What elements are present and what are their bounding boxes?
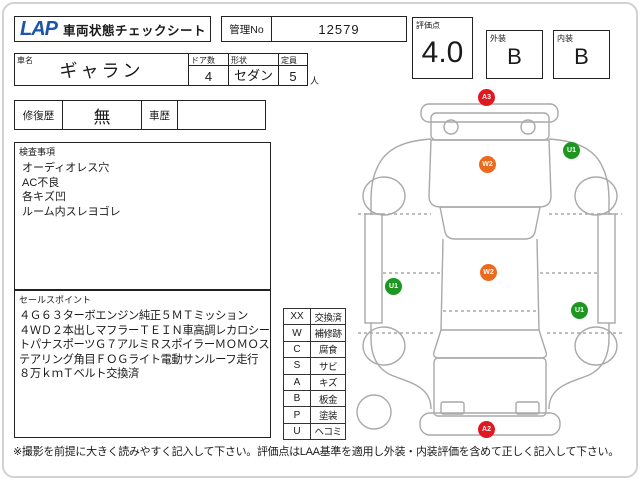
- legend-row: XX交換済: [284, 309, 346, 325]
- legend-label: 交換済: [311, 309, 346, 325]
- inspection-item: AC不良: [22, 176, 266, 191]
- header-title-box: LAP 車両状態チェックシート: [14, 16, 211, 42]
- legend-code: P: [284, 407, 311, 423]
- sales-points-label: セールスポイント: [19, 293, 266, 306]
- left-front-fender: [371, 139, 431, 214]
- control-number-box: 管理No 12579: [221, 16, 407, 42]
- rear-window: [434, 330, 547, 358]
- score-label: 評価点: [416, 20, 440, 31]
- legend-label: サビ: [311, 358, 346, 374]
- sales-line: ４Ｇ６３ターボエンジン純正５ＭＴミッション: [19, 309, 266, 324]
- inspection-item: ルーム内スレヨゴレ: [22, 205, 266, 220]
- control-number-label: 管理No: [222, 17, 272, 41]
- sales-line: トパナスポーツＧ７アルミＲスポイラーＭＯＭＯス: [19, 338, 266, 353]
- front-panel: [431, 113, 549, 140]
- right-tail-light: [516, 402, 539, 414]
- legend-label: キズ: [311, 374, 346, 390]
- interior-label: 内装: [557, 33, 573, 44]
- shape-cell: 形状 セダン: [229, 54, 279, 85]
- legend-code: U: [284, 423, 311, 439]
- right-rocker-panel: [598, 214, 615, 323]
- legend-row: P塗装: [284, 407, 346, 423]
- footer-note: ※撮影を前提に大きく読みやすく記入して下さい。評価点はLAA基準を適用し外装・内…: [13, 443, 633, 459]
- legend-label: 塗装: [311, 407, 346, 423]
- exterior-label: 外装: [490, 33, 506, 44]
- legend-row: C腐食: [284, 341, 346, 357]
- legend-row: W補修跡: [284, 325, 346, 341]
- legend-code: W: [284, 325, 311, 341]
- spare-wheel: [357, 395, 391, 429]
- history-row: 修復歴 無 車歴: [14, 100, 266, 130]
- legend-label: 板金: [311, 390, 346, 406]
- sales-points-box: セールスポイント ４Ｇ６３ターボエンジン純正５ＭＴミッション ４ＷＤ２本出しマフ…: [14, 290, 271, 438]
- legend-row: Uヘコミ: [284, 423, 346, 439]
- damage-marker-front-bumper: A3: [478, 89, 495, 106]
- inspection-items: オーディオレス穴 AC不良 各キズ凹 ルーム内スレヨゴレ: [19, 161, 266, 219]
- hood: [429, 140, 551, 207]
- right-front-wheel: [575, 177, 617, 215]
- repair-history-label: 修復歴: [15, 101, 63, 129]
- damage-marker-roof: W2: [480, 264, 497, 281]
- legend-row: B板金: [284, 390, 346, 406]
- legend-label: 補修跡: [311, 325, 346, 341]
- vehicle-name-cell: 車名 ギャラン: [15, 54, 189, 85]
- cabin-right-edge: [537, 239, 539, 330]
- doors-cell: ドア数 4: [189, 54, 229, 85]
- inspection-item: 各キズ凹: [22, 190, 266, 205]
- cabin-left-edge: [441, 239, 443, 330]
- exterior-grade-box: 外装 B: [486, 30, 543, 79]
- legend-code: XX: [284, 309, 311, 325]
- inspection-box: 検査事項 オーディオレス穴 AC不良 各キズ凹 ルーム内スレヨゴレ: [14, 142, 271, 290]
- score-box: 評価点 4.0: [412, 17, 473, 79]
- doors-value: 4: [189, 69, 228, 84]
- shape-value: セダン: [229, 65, 278, 84]
- left-front-wheel: [363, 177, 405, 215]
- vehicle-check-sheet: LAP 車両状態チェックシート 管理No 12579 評価点 4.0 外装 B …: [0, 0, 640, 480]
- repair-history-value: 無: [63, 101, 142, 129]
- legend-row: Aキズ: [284, 374, 346, 390]
- vehicle-name-value: ギャラン: [15, 57, 188, 83]
- car-diagram: [350, 78, 640, 445]
- sheet-title: 車両状態チェックシート: [63, 20, 206, 39]
- trunk: [434, 358, 546, 416]
- left-tail-light: [441, 402, 464, 414]
- vehicle-info-row: 車名 ギャラン ドア数 4 形状 セダン 定員 5: [14, 53, 308, 86]
- sales-line: ８万ｋｍＴベルト交換済: [19, 367, 266, 382]
- sales-line: テアリング角目ＦＯＧライト電動サンルーフ走行: [19, 353, 266, 368]
- damage-marker-right-rear-door: U1: [571, 302, 588, 319]
- capacity-label: 定員: [279, 54, 307, 66]
- damage-code-legend: XX交換済 W補修跡 C腐食 Sサビ Aキズ B板金 P塗装 Uヘコミ: [283, 308, 346, 440]
- damage-marker-right-front-fender: U1: [563, 142, 580, 159]
- inspection-item: オーディオレス穴: [22, 161, 266, 176]
- doors-label: ドア数: [189, 54, 228, 66]
- capacity-unit: 人: [310, 74, 319, 87]
- control-number-value: 12579: [272, 17, 406, 41]
- windshield: [440, 207, 540, 239]
- car-history-label: 車歴: [142, 101, 178, 129]
- sales-points-text: ４Ｇ６３ターボエンジン純正５ＭＴミッション ４ＷＤ２本出しマフラーＴＥＩＮ車高調…: [19, 309, 266, 382]
- capacity-value: 5: [279, 69, 307, 84]
- damage-marker-left-door: U1: [385, 278, 402, 295]
- legend-code: A: [284, 374, 311, 390]
- lap-logo: LAP: [20, 19, 57, 39]
- left-rocker-panel: [365, 214, 382, 323]
- interior-grade: B: [554, 44, 609, 70]
- score-value: 4.0: [413, 32, 472, 74]
- sales-line: ４ＷＤ２本出しマフラーＴＥＩＮ車高調レカロシー: [19, 324, 266, 339]
- legend-label: ヘコミ: [311, 423, 346, 439]
- damage-marker-rear-bumper: A2: [478, 421, 495, 438]
- inspection-label: 検査事項: [19, 145, 266, 158]
- exterior-grade: B: [487, 44, 542, 70]
- legend-code: S: [284, 358, 311, 374]
- capacity-cell: 定員 5: [279, 54, 307, 85]
- legend-code: B: [284, 390, 311, 406]
- legend-code: C: [284, 341, 311, 357]
- damage-marker-hood: W2: [479, 156, 496, 173]
- car-history-value: [178, 101, 265, 129]
- legend-label: 腐食: [311, 341, 346, 357]
- legend-row: Sサビ: [284, 358, 346, 374]
- interior-grade-box: 内装 B: [553, 30, 610, 79]
